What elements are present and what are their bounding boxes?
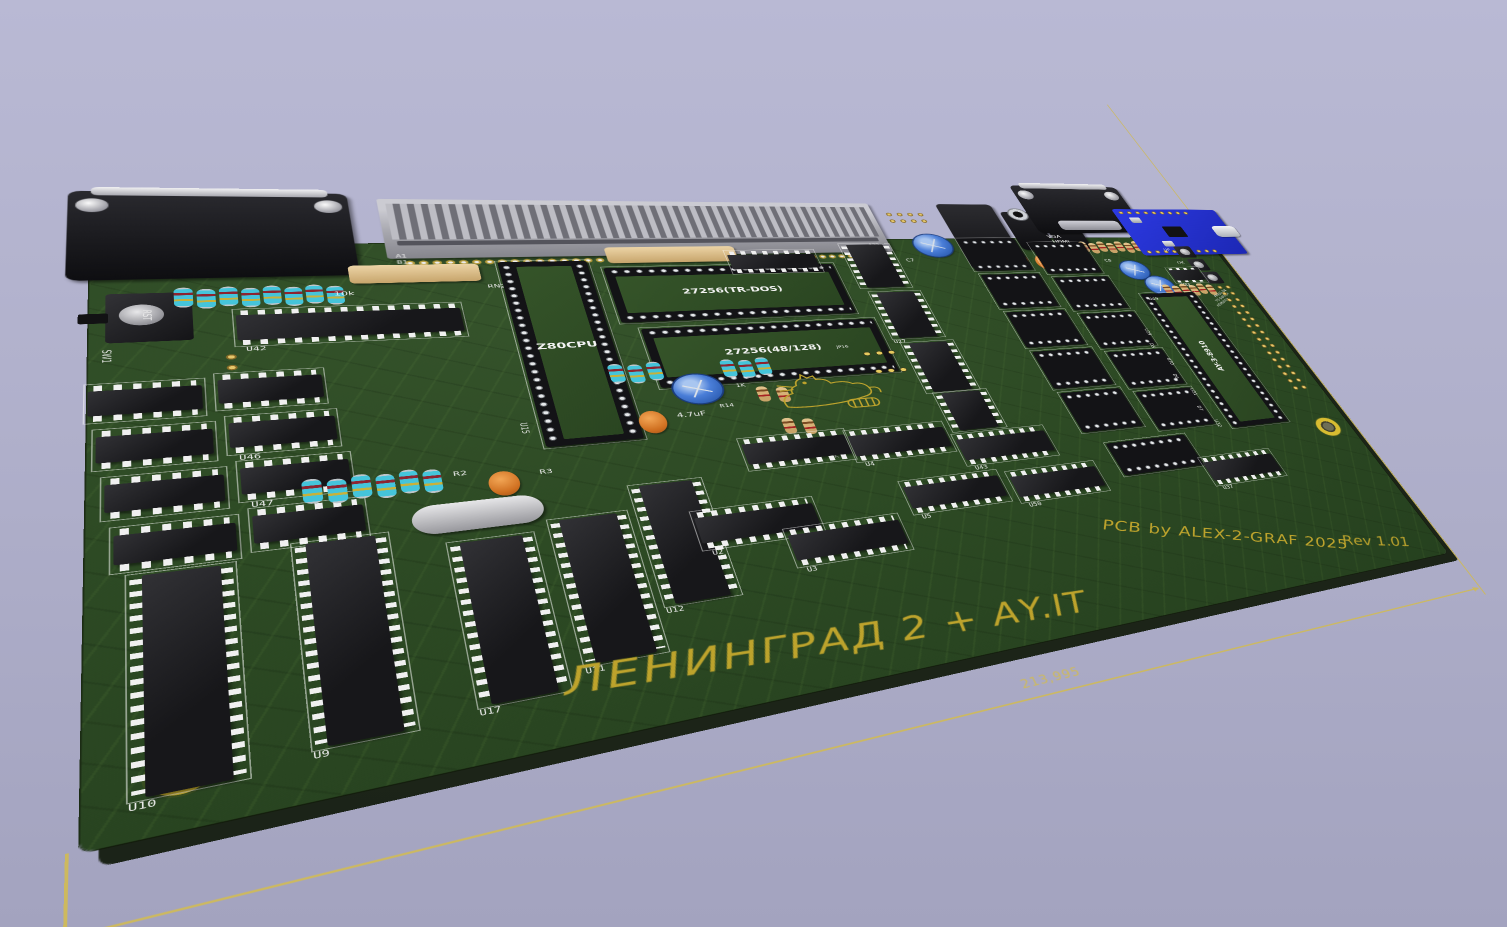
- ic-dip: [725, 250, 822, 273]
- dsub-port: [1057, 221, 1124, 230]
- silkscreen-10k: 10k: [333, 291, 355, 297]
- resistor-cyan: [219, 286, 239, 306]
- button-plunger: [1206, 274, 1220, 281]
- ref-u4: U4: [864, 461, 876, 468]
- resistor-cyan: [305, 284, 325, 303]
- board-revision-silkscreen: Rev 1.01: [1339, 533, 1412, 550]
- resistor-cyan: [196, 289, 216, 309]
- dsub-screw: [75, 198, 108, 212]
- gold-pin-header: [221, 351, 243, 373]
- ic-socket-27256-tr-dos-: 27256(TR-DOS): [603, 264, 856, 323]
- silkscreen-u15: U15: [517, 422, 530, 434]
- silkscreen-c7: C7: [905, 259, 915, 263]
- resistor-cyan: [262, 285, 282, 305]
- socket-pins: [960, 239, 1016, 245]
- gold-pin-header: [882, 211, 931, 224]
- ref-u42: U42: [246, 346, 267, 353]
- silkscreen-c8: C8: [1104, 259, 1113, 263]
- silkscreen-vga: VGA: [1046, 234, 1062, 238]
- resistor-cyan: [398, 469, 421, 494]
- resistor-cyan: [326, 478, 349, 504]
- socket-pins: [1031, 243, 1083, 249]
- component-layer: A1B1A32B32C7VGAHDMIUPOKDNC8C9U44PRESS OK…: [90, 237, 1205, 246]
- ic-body: [142, 565, 234, 797]
- silkscreen-1k: 1K: [735, 383, 746, 388]
- resistor-cyan: [173, 287, 193, 307]
- silkscreen-rst: RST: [139, 310, 151, 321]
- capacitor-vent: [679, 377, 716, 400]
- silkscreen-up: UP: [1163, 249, 1172, 252]
- silkscreen-ok: OK: [1177, 261, 1186, 264]
- ic-u10: [129, 564, 247, 800]
- resistor-network: [347, 264, 482, 284]
- silkscreen-u49: U49: [1148, 297, 1160, 301]
- resistor-cyan: [375, 473, 398, 499]
- resistor-cyan: [284, 287, 304, 307]
- resistor-cyan: [350, 473, 373, 499]
- resistor-cyan: [241, 288, 261, 308]
- resistor-cyan: [301, 478, 324, 504]
- pcb-board: 213,995 A1B1A32B32C7VGAHDMIUPOKDNC8C9U44…: [80, 237, 1448, 853]
- silkscreen-a1: A1: [395, 255, 407, 259]
- button-plunger: [1178, 249, 1192, 255]
- db9-joystick-connector: [65, 191, 360, 281]
- switch-lever: [78, 314, 108, 325]
- capacitor-vent: [1125, 262, 1144, 277]
- edge-connector-ridges: [385, 204, 879, 240]
- silkscreen-jp16: JP16: [836, 345, 850, 349]
- pcb-3d-viewport: 213,995 A1B1A32B32C7VGAHDMIUPOKDNC8C9U44…: [0, 0, 1507, 927]
- module-pin-row: [1115, 210, 1193, 216]
- dimension-extension-left: [63, 853, 69, 927]
- resistor-network: [603, 246, 739, 263]
- capacitor-vent: [919, 236, 946, 255]
- silkscreen-sw1: SW1: [98, 350, 111, 364]
